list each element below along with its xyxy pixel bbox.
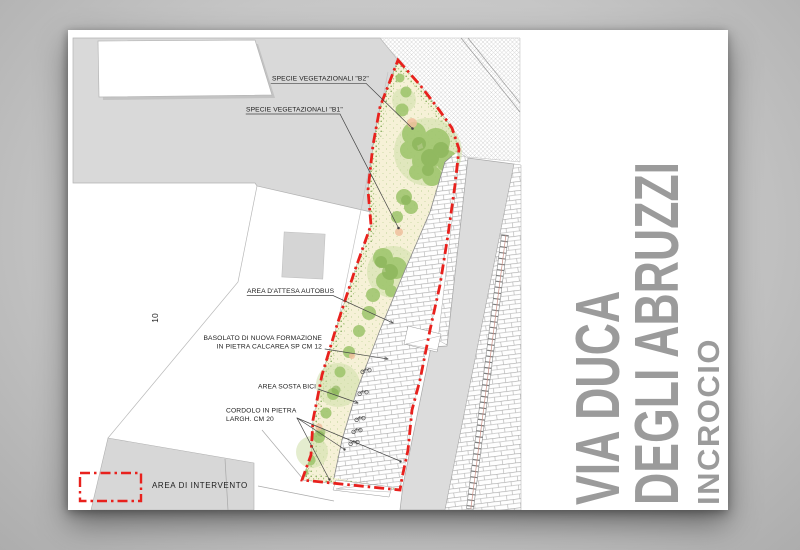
legend-area-intervento-label: AREA DI INTERVENTO xyxy=(152,481,248,490)
label-basolato-2: IN PIETRA CALCAREA SP CM 12 xyxy=(217,344,322,351)
parcel-number: 10 xyxy=(150,313,160,323)
title-block: VIA DUCA DEGLI ABRUZZI INCROCIO xyxy=(570,125,728,505)
label-cordolo-1: CORDOLO IN PIETRA xyxy=(226,408,297,415)
parcel-line xyxy=(108,186,257,438)
title-line-1: VIA DUCA xyxy=(570,231,629,505)
building-footprint xyxy=(98,40,272,97)
label-cordolo-2: LARGH. CM 20 xyxy=(226,416,274,423)
title-line-2: DEGLI ABRUZZI xyxy=(629,231,688,505)
building-square xyxy=(282,232,325,279)
kerb-line-b xyxy=(258,486,334,501)
label-sosta-bici: AREA SOSTA BICI xyxy=(258,384,316,391)
photo-of-drawing: SPECIE VEGETAZIONALI "B2" SPECIE VEGETAZ… xyxy=(0,0,800,550)
label-specie-b1: SPECIE VEGETAZIONALI "B1" xyxy=(246,107,343,114)
label-specie-b2: SPECIE VEGETAZIONALI "B2" xyxy=(272,76,369,83)
label-basolato-1: BASOLATO DI NUOVA FORMAZIONE xyxy=(203,335,322,342)
drawing-sheet: SPECIE VEGETAZIONALI "B2" SPECIE VEGETAZ… xyxy=(68,30,728,510)
label-attesa-autobus: AREA D'ATTESA AUTOBUS xyxy=(247,288,335,295)
title-line-3: INCROCIO xyxy=(693,125,724,505)
